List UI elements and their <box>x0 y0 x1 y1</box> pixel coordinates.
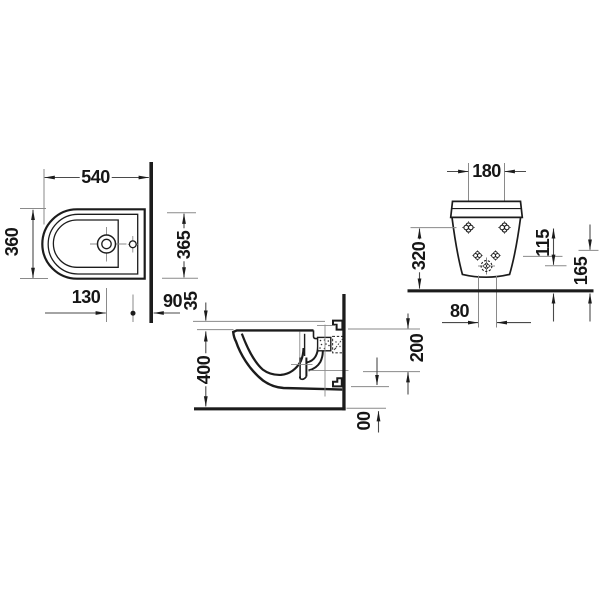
dim-label-130: 130 <box>72 288 101 306</box>
dim-label-90: 90 <box>163 292 182 310</box>
dim-label-540: 540 <box>79 168 112 186</box>
floor-line-side <box>194 407 346 410</box>
side-view <box>193 294 420 433</box>
dim-label-115: 115 <box>534 230 552 258</box>
dim-label-360: 360 <box>3 227 21 256</box>
dim-label-35: 35 <box>182 292 200 311</box>
technical-drawing-canvas: 540 360 365 130 90 35 400 200 00 180 320… <box>0 0 600 600</box>
dim-label-320: 320 <box>410 239 428 272</box>
drain-fitting <box>318 337 331 350</box>
dim-label-200: 200 <box>408 333 426 362</box>
dim-label-365: 365 <box>175 228 193 261</box>
dim-label-400: 400 <box>195 354 213 387</box>
dim-label-165: 165 <box>572 257 590 286</box>
front-view <box>408 163 599 328</box>
bidet-rim-front <box>451 201 523 217</box>
dim-label-180: 180 <box>470 162 503 180</box>
floor-line-front <box>408 289 594 292</box>
wall-line-plan <box>149 162 153 323</box>
dim-label-80: 80 <box>450 302 469 320</box>
wall-line-side <box>342 294 345 410</box>
dim-chain-dot <box>131 311 136 316</box>
dim-label-00: 00 <box>355 411 373 430</box>
